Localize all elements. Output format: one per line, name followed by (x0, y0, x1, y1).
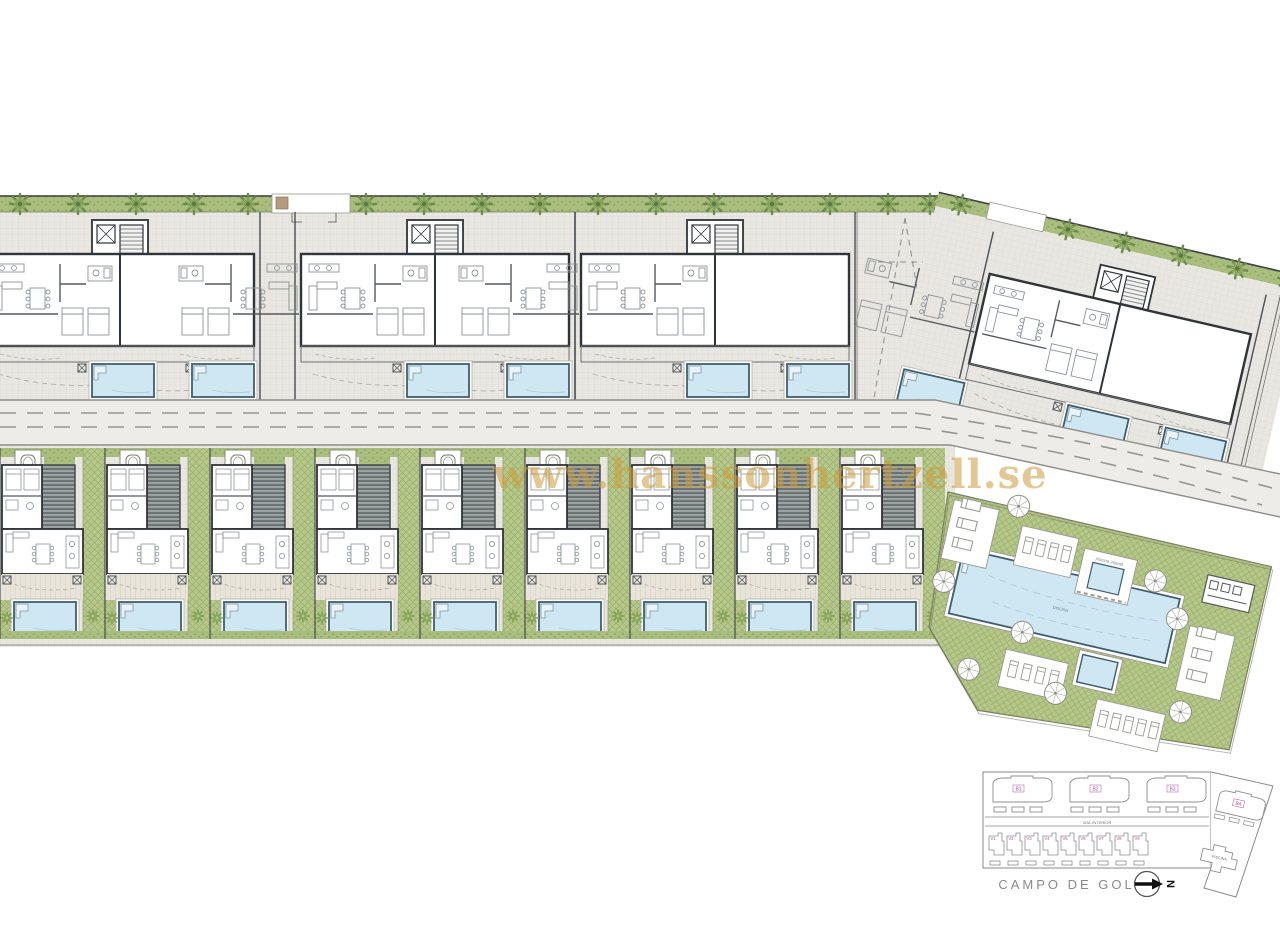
campo-de-golf-label: CAMPO DE GOLF (998, 877, 1145, 892)
villa-v4 (315, 448, 420, 639)
svg-text:B3: B3 (1169, 787, 1175, 793)
svg-text:V3: V3 (1026, 836, 1032, 841)
svg-text:V1: V1 (990, 836, 996, 841)
svg-text:V7: V7 (1098, 836, 1104, 841)
north-arrow: N (1135, 872, 1177, 897)
keyplan-street-label: VIAL INTERIOR (1083, 820, 1112, 825)
watermark: www.hanssonhertzell.se (492, 451, 1048, 498)
svg-text:V4: V4 (1044, 836, 1050, 841)
svg-text:B1: B1 (1015, 787, 1021, 793)
apartment-blocks-row (0, 212, 855, 400)
svg-text:B2: B2 (1092, 787, 1098, 793)
villa-v1 (0, 448, 105, 639)
svg-text:V2: V2 (1008, 836, 1014, 841)
site-plan-drawing: piscina piscina infantil (0, 0, 1280, 933)
svg-text:V9: V9 (1134, 836, 1140, 841)
villa-v3 (210, 448, 315, 639)
key-plan: B1 B2 B3 VIAL INTERIOR V1 V2 V3 V4 V5 V6… (983, 772, 1273, 897)
svg-text:V8: V8 (1116, 836, 1122, 841)
villa-v2 (105, 448, 210, 639)
north-letter: N (1164, 880, 1176, 888)
svg-text:V6: V6 (1080, 836, 1086, 841)
communal-pool-area: piscina piscina infantil (901, 479, 1276, 770)
svg-text:V5: V5 (1062, 836, 1068, 841)
site-plan-page: piscina piscina infantil (0, 0, 1280, 933)
